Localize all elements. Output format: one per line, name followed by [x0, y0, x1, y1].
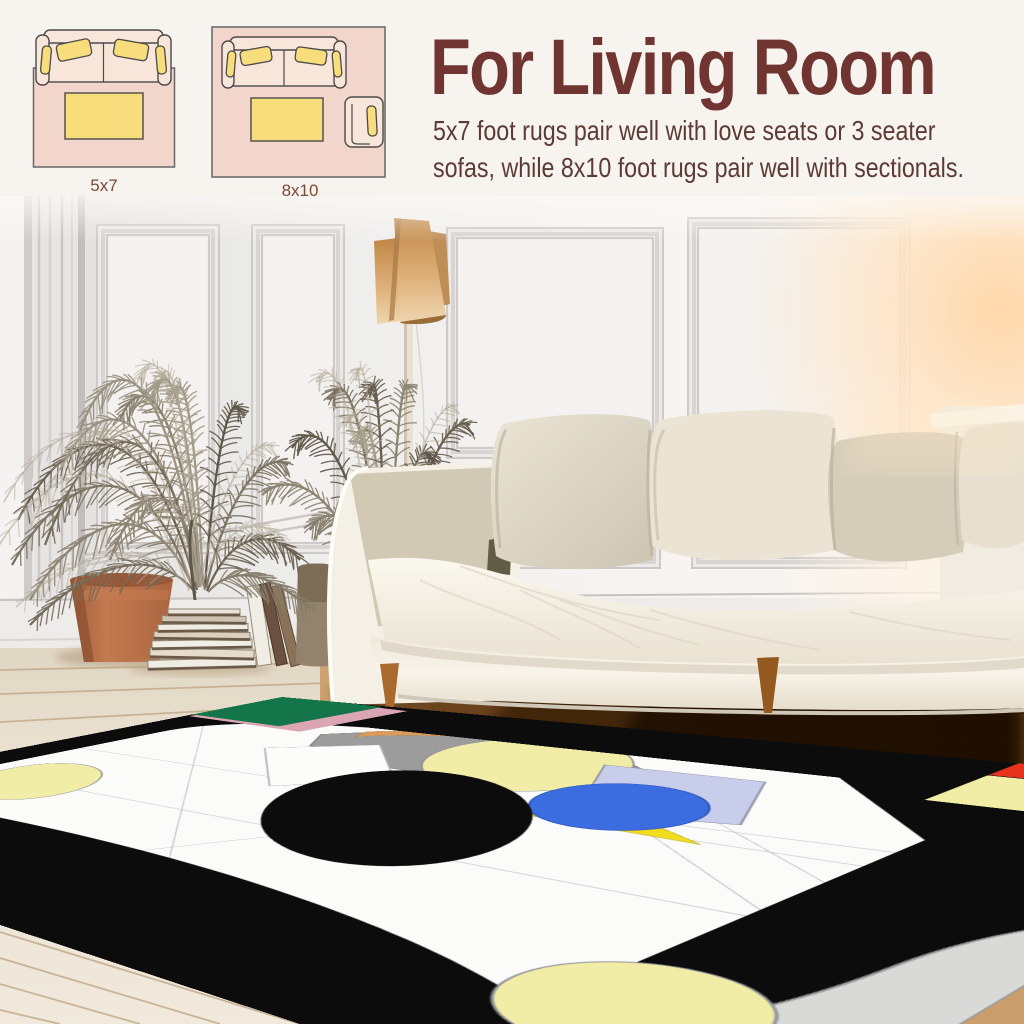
svg-text:5x7: 5x7 — [90, 176, 117, 195]
svg-text:8x10: 8x10 — [282, 181, 319, 200]
